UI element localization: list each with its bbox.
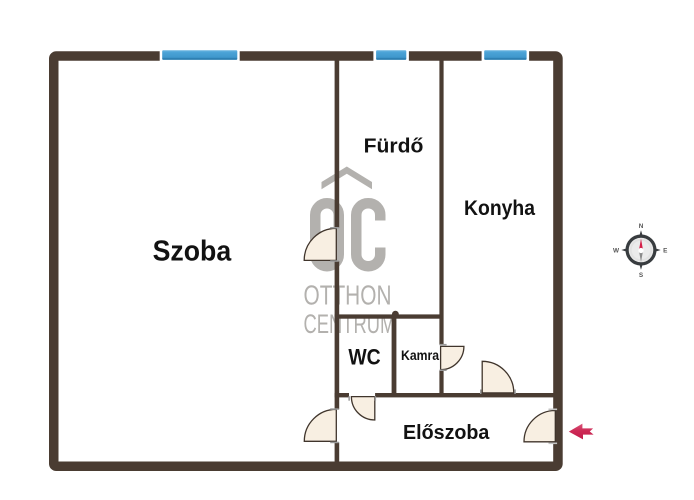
- svg-text:Szoba: Szoba: [153, 234, 232, 266]
- svg-text:Előszoba: Előszoba: [403, 422, 490, 444]
- svg-text:WC: WC: [348, 345, 380, 369]
- svg-text:N: N: [639, 223, 644, 230]
- svg-text:Fürdő: Fürdő: [364, 135, 424, 158]
- svg-text:Kamra: Kamra: [401, 347, 440, 363]
- svg-text:OTTHON: OTTHON: [304, 281, 392, 312]
- svg-text:E: E: [663, 248, 668, 255]
- svg-text:Konyha: Konyha: [464, 196, 536, 220]
- svg-text:S: S: [639, 272, 644, 279]
- svg-text:CENTRUM: CENTRUM: [304, 308, 396, 338]
- svg-text:W: W: [613, 248, 620, 255]
